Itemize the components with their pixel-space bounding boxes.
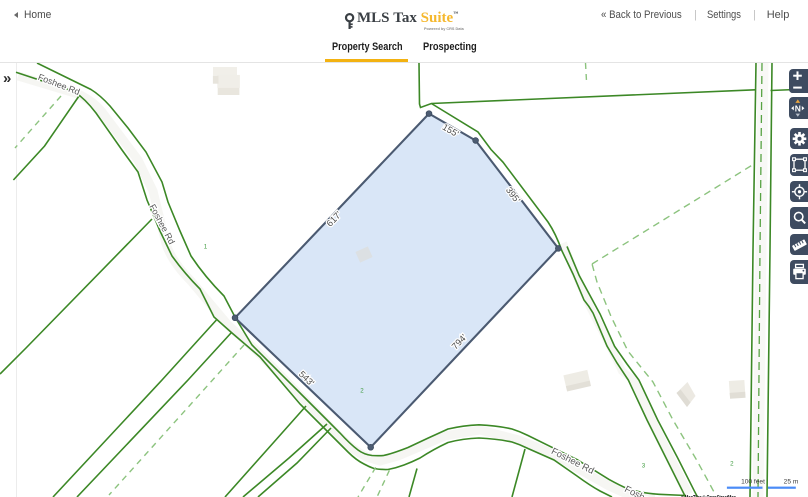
svg-text:25 m: 25 m [784,479,799,486]
svg-text:2: 2 [730,461,734,468]
svg-text:2: 2 [360,388,364,395]
svg-text:1: 1 [204,244,208,251]
svg-text:3: 3 [642,463,646,470]
svg-text:100 feet: 100 feet [741,479,765,486]
svg-text:N: N [795,104,801,114]
